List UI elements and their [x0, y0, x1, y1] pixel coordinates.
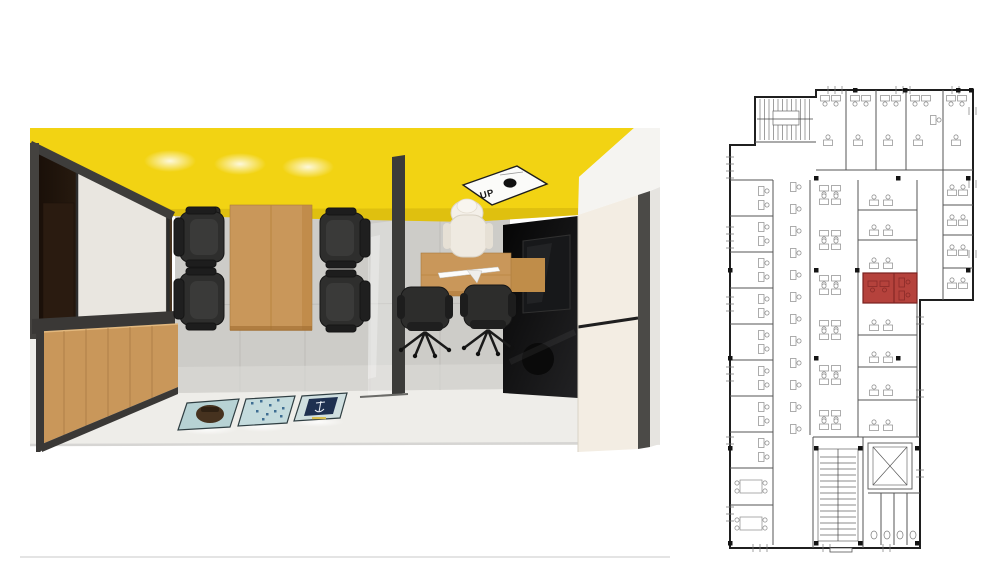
ceiling-light-icon	[282, 156, 334, 178]
office-chair	[174, 268, 224, 330]
poster-frame	[178, 399, 239, 430]
office-chair	[174, 207, 224, 267]
partition-post	[392, 155, 405, 395]
bottom-divider-line	[20, 556, 670, 558]
interior-render-image: UP	[30, 127, 660, 452]
ceiling-light-icon	[144, 150, 196, 172]
floor-plan-svg	[718, 85, 980, 555]
sliding-panels	[578, 187, 660, 452]
interior-render-svg: UP	[30, 127, 660, 452]
logo-dot-icon	[504, 178, 517, 187]
poster-frame	[294, 393, 347, 421]
highlighted-room	[863, 273, 917, 303]
office-chair	[320, 270, 370, 332]
presentation-canvas: UP	[0, 0, 1000, 562]
meeting-table	[230, 205, 312, 331]
office-chair	[320, 208, 370, 268]
entry	[830, 548, 852, 552]
poster-frame	[238, 396, 295, 426]
floor-plan-image	[718, 85, 980, 555]
ceiling-light-icon	[214, 153, 266, 175]
door	[43, 203, 74, 333]
plan-outline	[730, 90, 973, 548]
panel-trim	[638, 191, 650, 449]
